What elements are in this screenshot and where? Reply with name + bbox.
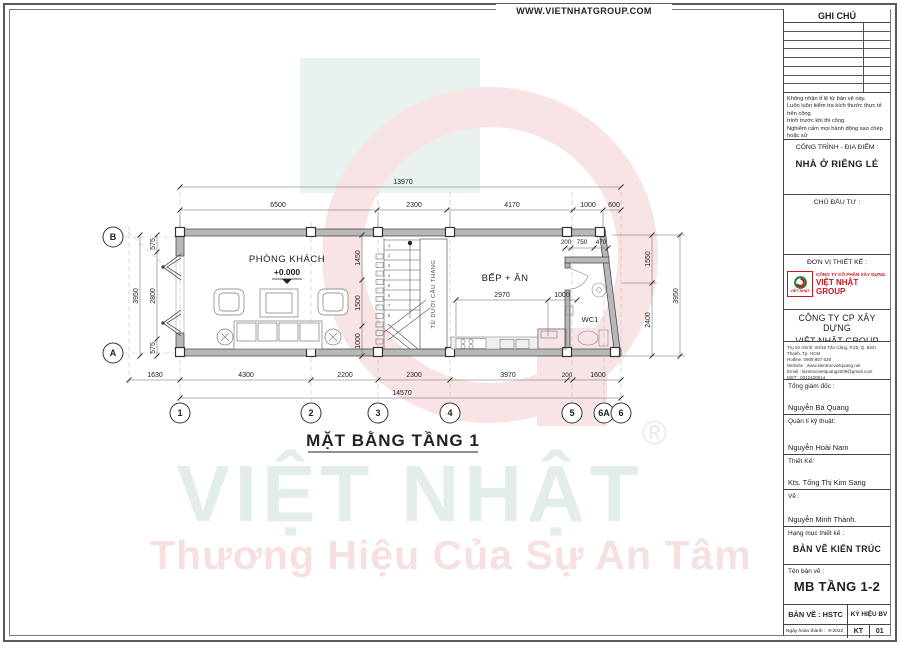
date-value: 9-2022 (828, 629, 843, 634)
contact-section: Trụ sở chính: 20/18 Tân Cảng, P.25, Q. B… (784, 342, 890, 380)
project-label: CÔNG TRÌNH - ĐỊA ĐIỂM : (784, 140, 890, 151)
note-line: Luôn luôn kiểm tra kích thước thực tế tr… (787, 103, 887, 118)
sheet-type: BẢN VẼ : HSTC (784, 605, 848, 624)
grid-row-label: B (110, 232, 117, 242)
role-label: Tổng giám đốc : (784, 380, 890, 390)
dim-top: 600 (608, 202, 620, 209)
stairs: 1 2 3 4 5 6 7 8 (376, 238, 430, 349)
grid-col-label: 6A (598, 408, 610, 418)
logo-company-small: CÔNG TY CỔ PHẦN XÂY DỰNG (816, 272, 887, 278)
dim-right: 1550 (645, 251, 652, 267)
dim-bottom: 1600 (590, 372, 606, 379)
drawing-sheet: VIỆT NHẬT ® Thương Hiệu Của Sự An Tâm (0, 0, 900, 645)
dim-top-overall: 13970 (393, 179, 413, 186)
dim-right: 2400 (645, 312, 652, 328)
stair-step-number: 5 (388, 283, 391, 288)
dim-left: 575 (150, 342, 157, 354)
dim-bottom: 2300 (406, 372, 422, 379)
role-name: Nguyễn Hoài Nam (784, 443, 890, 454)
kitchen-label: BẾP + ĂN (482, 273, 529, 284)
dim-kitchen: 1000 (554, 292, 570, 299)
wc-label: WC1 (582, 315, 599, 324)
watermark-logo (300, 58, 638, 426)
role-draughtsman: Vẽ : Nguyễn Minh Thành. (784, 490, 890, 527)
dim-bottom: 200 (562, 372, 573, 379)
dim-kitchen: 2970 (494, 292, 510, 299)
role-technical: Quản lí kỹ thuật: Nguyễn Hoài Nam (784, 415, 890, 455)
sheet-symbol-header: KÝ HIỆU BV (848, 605, 890, 624)
dim-wc: 470 (596, 239, 607, 246)
floor-plan-canvas: 1 2 3 4 5 6 7 8 TỦ DƯỚI CẦU THANG (0, 0, 783, 645)
plan-title: MẶT BẰNG TẦNG 1 (306, 431, 480, 450)
sheet-code: KT (848, 625, 869, 638)
grid-col-label: 2 (308, 408, 313, 418)
dim-right-overall: 3950 (673, 288, 680, 304)
dim-wc: 200 (561, 239, 572, 246)
designer-section: ĐƠN VỊ THIẾT KẾ : VIỆT NHẬT CÔNG TY CỔ P… (784, 255, 890, 310)
sheet-meta-row: Ngày hoàn thành : 9-2022 KT 01 (784, 625, 890, 638)
website-url: WWW.VIETNHATGROUP.COM (516, 6, 652, 16)
role-name: Kts. Tống Thị Kim Sang (784, 478, 890, 489)
dim-left: 575 (150, 238, 157, 250)
dim-bottom: 2200 (337, 372, 353, 379)
stair-step-number: 7 (388, 303, 391, 308)
sheet-name-section: Tên bản vẽ : MB TẦNG 1-2 (784, 565, 890, 605)
contact-line: Trụ sở chính: 20/18 Tân Cảng, P.25, Q. B… (787, 345, 887, 357)
dim-inner: 1450 (355, 250, 362, 266)
dim-top: 2300 (406, 202, 422, 209)
living-room-furniture (214, 289, 348, 349)
company-name-section: CÔNG TY CP XÂY DỰNG VIỆT NHẬT GROUP (784, 310, 890, 342)
category-value: BẢN VẼ KIẾN TRÚC (784, 544, 890, 554)
stair-step-number: 2 (388, 253, 391, 258)
grid-col-label: 6 (618, 408, 623, 418)
notes-title: GHI CHÚ (784, 9, 890, 23)
sheet-value: MB TẦNG 1-2 (784, 579, 890, 594)
owner-section: CHỦ ĐẦU TƯ : (784, 195, 890, 255)
living-room-label: PHÒNG KHÁCH (249, 254, 325, 265)
stair-step-number: 4 (388, 273, 391, 278)
level-marker-icon (272, 279, 302, 284)
owner-label: CHỦ ĐẦU TƯ : (784, 195, 890, 206)
sheet-number: 01 (870, 625, 890, 638)
role-label: Quản lí kỹ thuật: (784, 415, 890, 425)
stair-step-number: 3 (388, 263, 391, 268)
dim-bottom: 1630 (147, 372, 163, 379)
role-label: Vẽ : (784, 490, 890, 500)
notes-text: Không nhận tỉ lệ từ bản vẽ này. Luôn luô… (784, 93, 890, 140)
role-label: Thiết Kế: (784, 455, 890, 465)
role-name: Nguyễn Bá Quang (784, 403, 890, 414)
dim-bottom: 4300 (238, 372, 254, 379)
grid-col-label: 1 (177, 408, 182, 418)
dim-bottom: 3970 (500, 372, 516, 379)
dim-bottom-overall: 14570 (392, 390, 412, 397)
entrance-gate (162, 254, 181, 336)
stair-step-number: 6 (388, 293, 391, 298)
company-name-line1: CÔNG TY CP XÂY DỰNG (784, 313, 890, 333)
notes-table (784, 23, 890, 93)
grid-col-label: 3 (375, 408, 380, 418)
role-director: Tổng giám đốc : Nguyễn Bá Quang (784, 380, 890, 415)
stair-railing (376, 254, 383, 344)
dim-top: 1000 (580, 202, 596, 209)
role-design: Thiết Kế: Kts. Tống Thị Kim Sang (784, 455, 890, 490)
category-label: Hạng mục thiết kế : (784, 527, 890, 537)
category-section: Hạng mục thiết kế : BẢN VẼ KIẾN TRÚC (784, 527, 890, 565)
title-block: GHI CHÚ Không nhận tỉ lệ từ bản vẽ này. … (783, 9, 891, 635)
project-section: CÔNG TRÌNH - ĐỊA ĐIỂM : NHÀ Ở RIÊNG LẺ (784, 140, 890, 195)
dim-inner: 1000 (355, 333, 362, 349)
grid-col-label: 4 (447, 408, 452, 418)
sheet-label: Tên bản vẽ : (784, 565, 890, 575)
role-name: Nguyễn Minh Thành. (784, 515, 890, 526)
stair-closet: TỦ DƯỚI CẦU THANG (420, 239, 447, 349)
dim-wc: 750 (577, 239, 588, 246)
company-logo: VIỆT NHẬT (787, 271, 813, 297)
sheet-type-row: BẢN VẼ : HSTC KÝ HIỆU BV (784, 605, 890, 625)
grid-col-label: 5 (569, 408, 574, 418)
level-label: +0.000 (274, 267, 301, 277)
dim-left: 2800 (150, 288, 157, 304)
note-line: trình trước khi thi công. (787, 118, 887, 125)
designer-label: ĐƠN VỊ THIẾT KẾ : (784, 255, 890, 266)
logo-caption: VIỆT NHẬT (791, 289, 810, 293)
dim-top: 4170 (504, 202, 520, 209)
dim-left-overall: 3950 (133, 288, 140, 304)
note-line: Nghiêm cấm mọi hành động sao chép hoặc s… (787, 126, 887, 140)
date-label: Ngày hoàn thành : (786, 629, 825, 634)
stair-closet-label: TỦ DƯỚI CẦU THANG (430, 260, 437, 329)
dim-top: 6500 (270, 202, 286, 209)
project-value: NHÀ Ở RIÊNG LẺ (784, 159, 890, 170)
logo-company-big: VIỆT NHẬT GROUP (816, 278, 887, 296)
company-logo-icon (794, 276, 807, 289)
grid-row-label: A (110, 348, 117, 358)
stair-step-number: 8 (388, 313, 391, 318)
stair-step-number: 1 (388, 243, 391, 248)
dim-inner: 1500 (355, 295, 362, 311)
